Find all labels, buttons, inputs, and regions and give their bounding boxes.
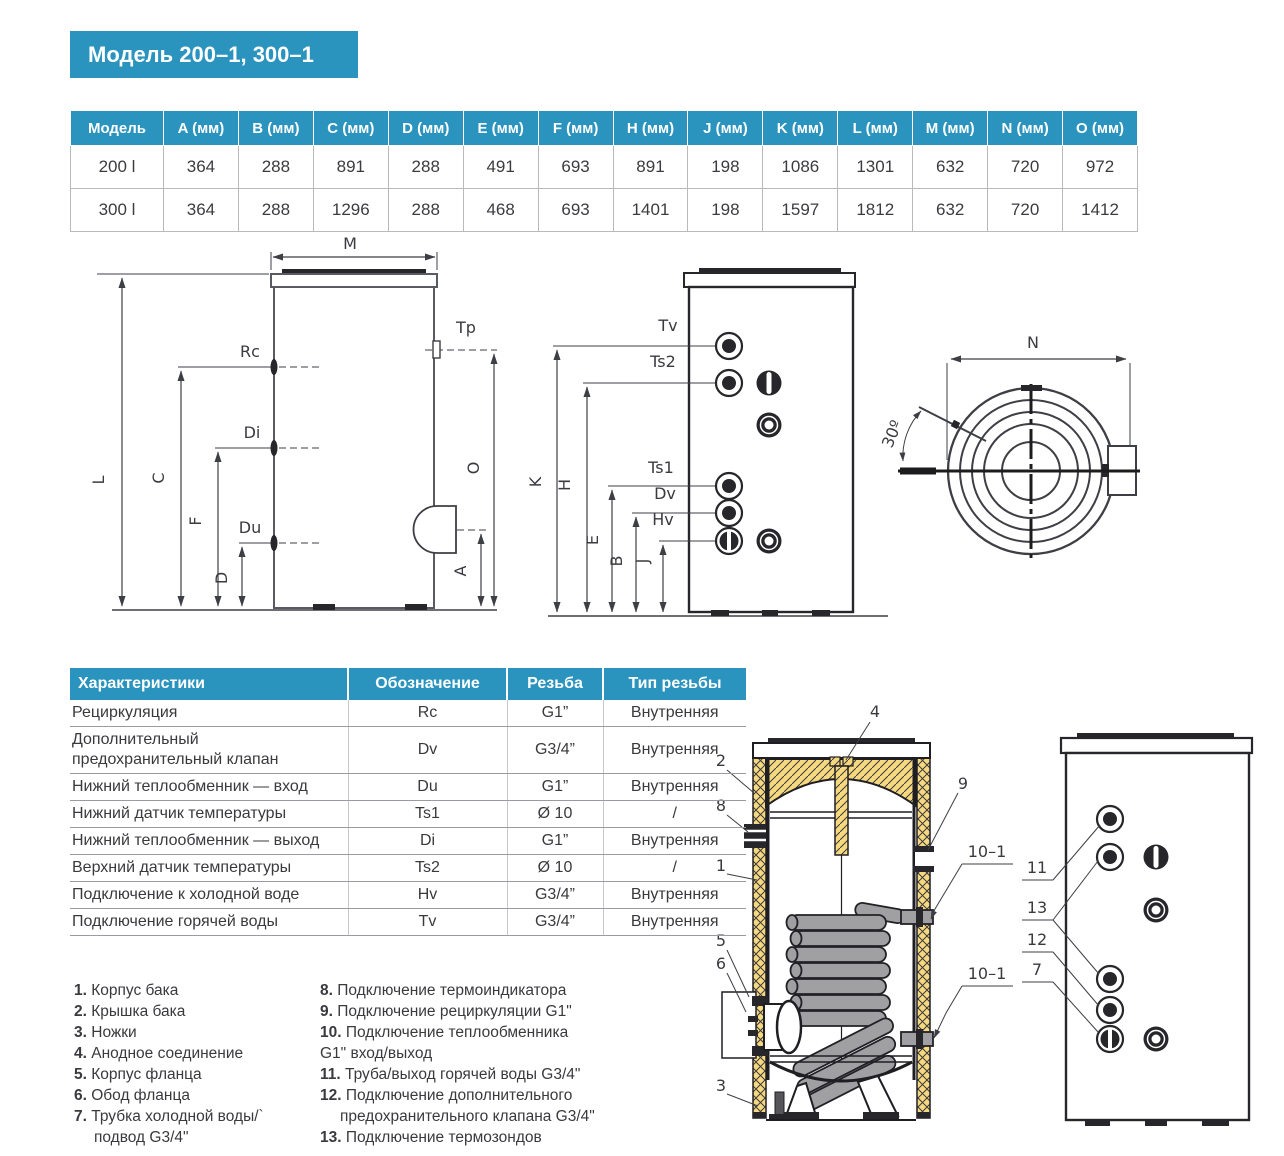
table-cell: Ø 10 [507,801,603,828]
dim-label-C: C [149,472,168,483]
dimensions-table: МодельA (мм)B (мм)C (мм)D (мм)E (мм)F (м… [70,110,1138,232]
dim-label-H: H [555,479,574,491]
table-row: Нижний теплообменник — выходDiG1”Внутрен… [70,828,746,855]
legend-item: 3. Ножки [74,1022,314,1043]
table-cell: 972 [1063,146,1138,189]
table-cell: 491 [463,146,538,189]
legend-item-continuation: подвод G3/4" [74,1127,314,1148]
table-cell: 693 [538,189,613,232]
flange-side [413,506,456,553]
table-cell: 891 [613,146,688,189]
ports-view-drawing: 11 13 12 7 [1022,733,1252,1126]
table-row: Дополнительный предохранительный клапанD… [70,727,746,774]
port-label-Tv: Tv [657,316,677,335]
table-cell: 288 [388,189,463,232]
column-header: N (мм) [988,111,1063,146]
port-8-fitting [744,824,766,848]
legend-list-right: 8. Подключение термоиндикатора9. Подключ… [320,980,620,1148]
cutaway-diagrams: 4 2 8 1 9 10–1 10–1 5 6 3 [700,688,1284,1156]
port-9-fitting [913,846,934,872]
port-label-Di: Di [244,423,261,442]
dim-label-K: K [526,476,545,487]
callout-10-1b: 10–1 [968,964,1007,983]
angle-label: 30º [878,417,906,450]
table-cell: 1296 [313,189,388,232]
table-cell: Подключение горячей воды [70,909,348,936]
table-cell: 468 [463,189,538,232]
column-header: B (мм) [238,111,313,146]
table-cell: / [603,801,746,828]
callout-12: 12 [1027,930,1047,949]
table-row: 200 l36428889128849169389119810861301632… [71,146,1138,189]
legend-item: 12. Подключение дополнительного [320,1085,620,1106]
table-cell: 1597 [763,189,838,232]
table-cell: Du [348,774,507,801]
legend-item: 1. Корпус бака [74,980,314,1001]
table-cell: Hv [348,882,507,909]
legend-item-continuation: G1" вход/выход [320,1043,620,1064]
column-header: O (мм) [1063,111,1138,146]
port-label-Hv: Hv [652,510,674,529]
table-cell: 1401 [613,189,688,232]
table-row: Нижний теплообменник — входDuG1”Внутренн… [70,774,746,801]
datasheet-page: { "page": { "title": "Модель 200–1, 300–… [0,0,1284,1156]
column-header: M (мм) [913,111,988,146]
port-label-Ts2: Ts2 [649,352,676,371]
port-label-Du: Du [239,518,261,537]
page-title: Модель 200–1, 300–1 [70,31,358,78]
top-view-drawing: N 30º [878,333,1140,558]
table-cell: 200 l [71,146,164,189]
anode-rod [835,766,848,855]
dim-label-E: E [583,535,602,545]
callout-7: 7 [1032,960,1042,979]
table-cell: Tv [348,909,507,936]
table-row: Верхний датчик температурыTs2Ø 10/ [70,855,746,882]
dim-label-F: F [186,516,205,525]
table-row: РециркуляцияRcG1”Внутренняя [70,700,746,727]
table-cell: G1” [507,774,603,801]
legend-item: 7. Трубка холодной воды/` [74,1106,314,1127]
table-row: Подключение к холодной водеHvG3/4”Внутре… [70,882,746,909]
table-cell: G1” [507,828,603,855]
callout-6: 6 [716,954,726,973]
table-cell: Внутренняя [603,727,746,774]
column-header: E (мм) [463,111,538,146]
table-cell: 288 [238,146,313,189]
table-cell: 1812 [838,189,913,232]
callout-3: 3 [716,1076,726,1095]
dim-label-O: O [464,462,483,475]
dimensions-table-wrap: МодельA (мм)B (мм)C (мм)D (мм)E (мм)F (м… [70,110,1138,232]
column-header: F (мм) [538,111,613,146]
table-row: 300 l36428812962884686931401198159718126… [71,189,1138,232]
table-cell: / [603,855,746,882]
table-cell: 364 [164,146,239,189]
column-header: Модель [71,111,164,146]
table-cell: Нижний теплообменник — вход [70,774,348,801]
table-cell: Внутренняя [603,828,746,855]
dimensions-table-header-row: МодельA (мм)B (мм)C (мм)D (мм)E (мм)F (м… [71,111,1138,146]
port-label-Dv: Dv [654,484,676,503]
table-cell: 198 [688,189,763,232]
port-label-Ts1: Ts1 [647,458,674,477]
legend-item: 9. Подключение рециркуляции G1" [320,1001,620,1022]
table-cell: 1412 [1063,189,1138,232]
table-cell: G3/4” [507,727,603,774]
legend-item: 4. Анодное соединение [74,1043,314,1064]
insulation-right [917,745,930,1118]
tank-lid [753,743,930,758]
column-header: Резьба [507,668,603,700]
table-cell: Внутренняя [603,774,746,801]
table-cell: 632 [913,146,988,189]
dim-label-J: J [633,559,652,565]
dim-label-L: L [89,475,108,484]
table-cell: Rc [348,700,507,727]
table-cell: 198 [688,146,763,189]
front-view-drawing: K H E B J Tv Ts2 Ts1 Dv Hv [526,268,888,616]
table-cell: 288 [388,146,463,189]
table-cell: Внутренняя [603,700,746,727]
table-cell: Рециркуляция [70,700,348,727]
table-cell: 300 l [71,189,164,232]
table-cell: Нижний датчик температуры [70,801,348,828]
legend-list-left: 1. Корпус бака2. Крышка бака3. Ножки4. А… [74,980,314,1148]
callout-4: 4 [870,702,880,721]
table-cell: Ts2 [348,855,507,882]
legend-item: 13. Подключение термозондов [320,1127,620,1148]
characteristics-table-wrap: ХарактеристикиОбозначениеРезьбаТип резьб… [70,668,690,936]
column-header: D (мм) [388,111,463,146]
table-cell: 720 [988,189,1063,232]
table-row: Нижний датчик температурыTs1Ø 10/ [70,801,746,828]
table-cell: Верхний датчик температуры [70,855,348,882]
legend-item: 8. Подключение термоиндикатора [320,980,620,1001]
column-header: Тип резьбы [603,668,746,700]
column-header: Обозначение [348,668,507,700]
table-cell: 1301 [838,146,913,189]
column-header: K (мм) [763,111,838,146]
table-cell: 288 [238,189,313,232]
table-cell: 720 [988,146,1063,189]
table-cell: Подключение к холодной воде [70,882,348,909]
column-header: L (мм) [838,111,913,146]
table-cell: Dv [348,727,507,774]
table-cell: G3/4” [507,909,603,936]
callout-9: 9 [958,774,968,793]
callout-11: 11 [1027,858,1047,877]
dim-label-D: D [212,572,231,584]
column-header: A (мм) [164,111,239,146]
legend-item: 6. Обод фланца [74,1085,314,1106]
table-cell: 693 [538,146,613,189]
callout-13: 13 [1027,898,1047,917]
legend-item: 5. Корпус фланца [74,1064,314,1085]
column-header: J (мм) [688,111,763,146]
table-cell: Ts1 [348,801,507,828]
port-label-Tp: Tp [455,318,476,337]
legend-item: 2. Крышка бака [74,1001,314,1022]
table-row: Подключение горячей водыTvG3/4”Внутрення… [70,909,746,936]
legend-item-continuation: предохранительного клапана G3/4" [320,1106,620,1127]
column-header: Характеристики [70,668,348,700]
column-header: C (мм) [313,111,388,146]
table-cell: Внутренняя [603,882,746,909]
table-cell: G1” [507,700,603,727]
column-header: H (мм) [613,111,688,146]
legend-item: 10. Подключение теплообменника [320,1022,620,1043]
dim-label-M: M [343,234,357,253]
table-cell: Дополнительный предохранительный клапан [70,727,348,774]
dim-label-N: N [1027,333,1039,352]
legend-item: 11. Труба/выход горячей воды G3/4" [320,1064,620,1085]
characteristics-table-header-row: ХарактеристикиОбозначениеРезьбаТип резьб… [70,668,746,700]
table-cell: G3/4” [507,882,603,909]
callout-10-1a: 10–1 [968,842,1007,861]
table-cell: Внутренняя [603,909,746,936]
table-cell: Ø 10 [507,855,603,882]
insulation-left [753,745,766,1118]
dim-label-A: A [451,565,470,576]
characteristics-table: ХарактеристикиОбозначениеРезьбаТип резьб… [70,668,746,936]
dim-label-B: B [607,556,626,567]
table-cell: Di [348,828,507,855]
port-label-Rc: Rc [240,342,260,361]
cross-section-drawing: 4 2 8 1 9 10–1 10–1 5 6 3 [716,702,1013,1120]
table-cell: Нижний теплообменник — выход [70,828,348,855]
table-cell: 1086 [763,146,838,189]
table-cell: 364 [164,189,239,232]
side-view-drawing: L M Rc C Di F Du D Tp O [89,234,497,610]
table-cell: 632 [913,189,988,232]
technical-drawings: L M Rc C Di F Du D Tp O [85,230,1280,660]
table-cell: 891 [313,146,388,189]
